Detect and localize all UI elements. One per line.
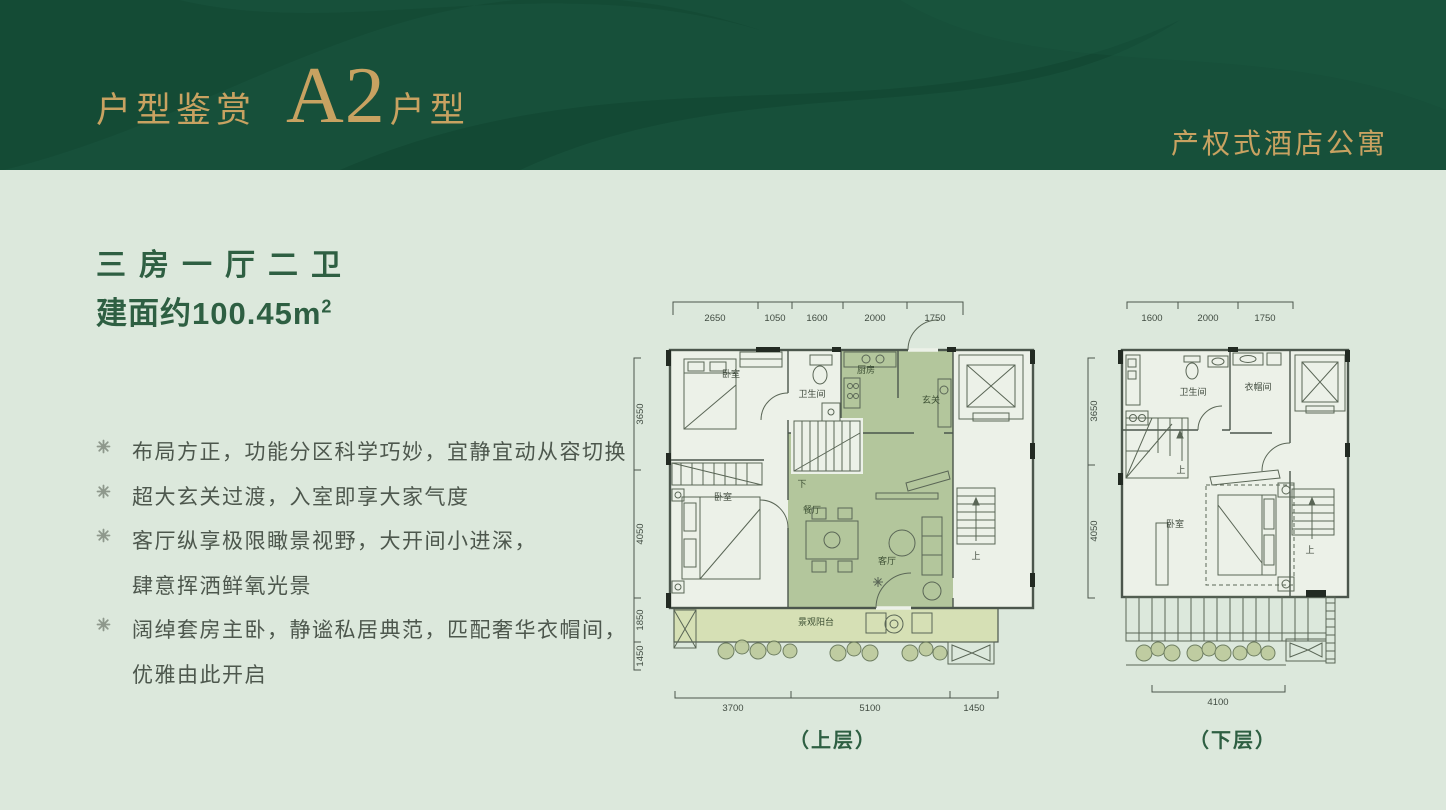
svg-text:1850: 1850 [635, 609, 646, 630]
feature-list: 布局方正，功能分区科学巧妙，宜静宜动从容切换 超大玄关过渡，入室即享大家气度 客… [96, 436, 596, 703]
feature-item-continuation: 优雅由此开启 [96, 659, 596, 704]
svg-text:卫生间: 卫生间 [798, 388, 825, 399]
floor-area: 建面约100.45m2 [96, 288, 332, 333]
svg-text:客厅: 客厅 [878, 555, 896, 566]
lower-plan-caption: （下层） [1189, 724, 1277, 753]
svg-text:景观阳台: 景观阳台 [798, 616, 834, 627]
svg-text:厨房: 厨房 [857, 364, 875, 375]
lower-dim-left: 3650 4050 [1088, 358, 1100, 598]
feature-text: 布局方正，功能分区科学巧妙，宜静宜动从容切换 [132, 436, 627, 466]
svg-text:2650: 2650 [704, 313, 725, 324]
feature-text: 肆意挥洒鲜氧光景 [132, 570, 312, 600]
svg-text:1450: 1450 [635, 645, 646, 666]
svg-text:3650: 3650 [1089, 400, 1100, 421]
upper-dim-bottom: 3700 5100 1450 [675, 691, 998, 714]
svg-text:1750: 1750 [924, 313, 945, 324]
svg-text:4100: 4100 [1207, 697, 1228, 708]
svg-text:3650: 3650 [635, 403, 646, 424]
upper-dim-left: 3650 4050 1850 1450 [634, 358, 646, 670]
svg-text:3700: 3700 [722, 703, 743, 714]
feature-item: 布局方正，功能分区科学巧妙，宜静宜动从容切换 [96, 436, 596, 481]
header-banner: 户型鉴赏 A2 户型 产权式酒店公寓 [0, 0, 1446, 170]
brochure-page: 户型鉴赏 A2 户型 产权式酒店公寓 三房一厅二卫 建面约100.45m2 布局… [0, 0, 1446, 810]
feature-item: 超大玄关过渡，入室即享大家气度 [96, 481, 596, 526]
flower-asterisk-icon [96, 481, 132, 504]
feature-text: 超大玄关过渡，入室即享大家气度 [132, 481, 470, 511]
upper-floor-plan: 2650 1050 1600 2000 1750 3650 4050 1850 … [626, 293, 1038, 753]
svg-text:衣帽间: 衣帽间 [1244, 381, 1271, 392]
svg-text:5100: 5100 [859, 703, 880, 714]
flower-asterisk-icon [96, 614, 132, 637]
svg-text:4050: 4050 [635, 523, 646, 544]
balcony-zone [674, 608, 998, 642]
svg-text:1750: 1750 [1254, 313, 1275, 324]
terrace-plants [1136, 642, 1275, 661]
svg-text:4050: 4050 [1089, 520, 1100, 541]
svg-text:下: 下 [797, 479, 806, 489]
flower-asterisk-icon [96, 525, 132, 548]
svg-text:1600: 1600 [1141, 313, 1162, 324]
feature-text: 客厅纵享极限瞰景视野，大开间小进深， [132, 525, 537, 555]
svg-text:1600: 1600 [806, 313, 827, 324]
lower-dim-bottom: 4100 [1152, 685, 1285, 708]
svg-text:2000: 2000 [1197, 313, 1218, 324]
svg-text:卧室: 卧室 [714, 491, 732, 502]
svg-text:1050: 1050 [764, 313, 785, 324]
upper-plan-caption: （上层） [789, 724, 877, 753]
feature-item-continuation: 肆意挥洒鲜氧光景 [96, 570, 596, 615]
svg-text:卫生间: 卫生间 [1179, 386, 1206, 397]
svg-text:卧室: 卧室 [1166, 518, 1184, 529]
page-title: 户型鉴赏 A2 户型 [96, 56, 470, 136]
property-type-label: 产权式酒店公寓 [1171, 122, 1388, 162]
svg-text:上: 上 [1305, 545, 1314, 555]
unit-code: A2 [286, 56, 386, 136]
svg-text:上: 上 [971, 551, 980, 561]
flower-asterisk-icon [96, 436, 132, 459]
upper-dim-top: 2650 1050 1600 2000 1750 [673, 302, 963, 324]
svg-text:2000: 2000 [864, 313, 885, 324]
svg-text:上: 上 [1176, 465, 1185, 475]
svg-text:1450: 1450 [963, 703, 984, 714]
svg-text:玄关: 玄关 [922, 394, 940, 405]
floor-area-sup: 2 [321, 297, 332, 317]
section-label: 户型鉴赏 [96, 82, 256, 133]
floor-area-text: 建面约100.45m [96, 296, 321, 331]
feature-text: 阔绰套房主卧，静谧私居典范，匹配奢华衣帽间， [132, 614, 627, 644]
feature-text: 优雅由此开启 [132, 659, 267, 689]
feature-item: 客厅纵享极限瞰景视野，大开间小进深， [96, 525, 596, 570]
lower-dim-top: 1600 2000 1750 [1127, 302, 1293, 324]
feature-item: 阔绰套房主卧，静谧私居典范，匹配奢华衣帽间， [96, 614, 596, 659]
unit-suffix: 户型 [390, 82, 470, 133]
svg-text:卧室: 卧室 [722, 368, 740, 379]
svg-text:餐厅: 餐厅 [803, 504, 821, 515]
lower-floor-plan: 1600 2000 1750 3650 4050 4100 [1080, 293, 1390, 753]
balcony-plants [718, 640, 947, 661]
layout-title: 三房一厅二卫 [96, 240, 354, 284]
